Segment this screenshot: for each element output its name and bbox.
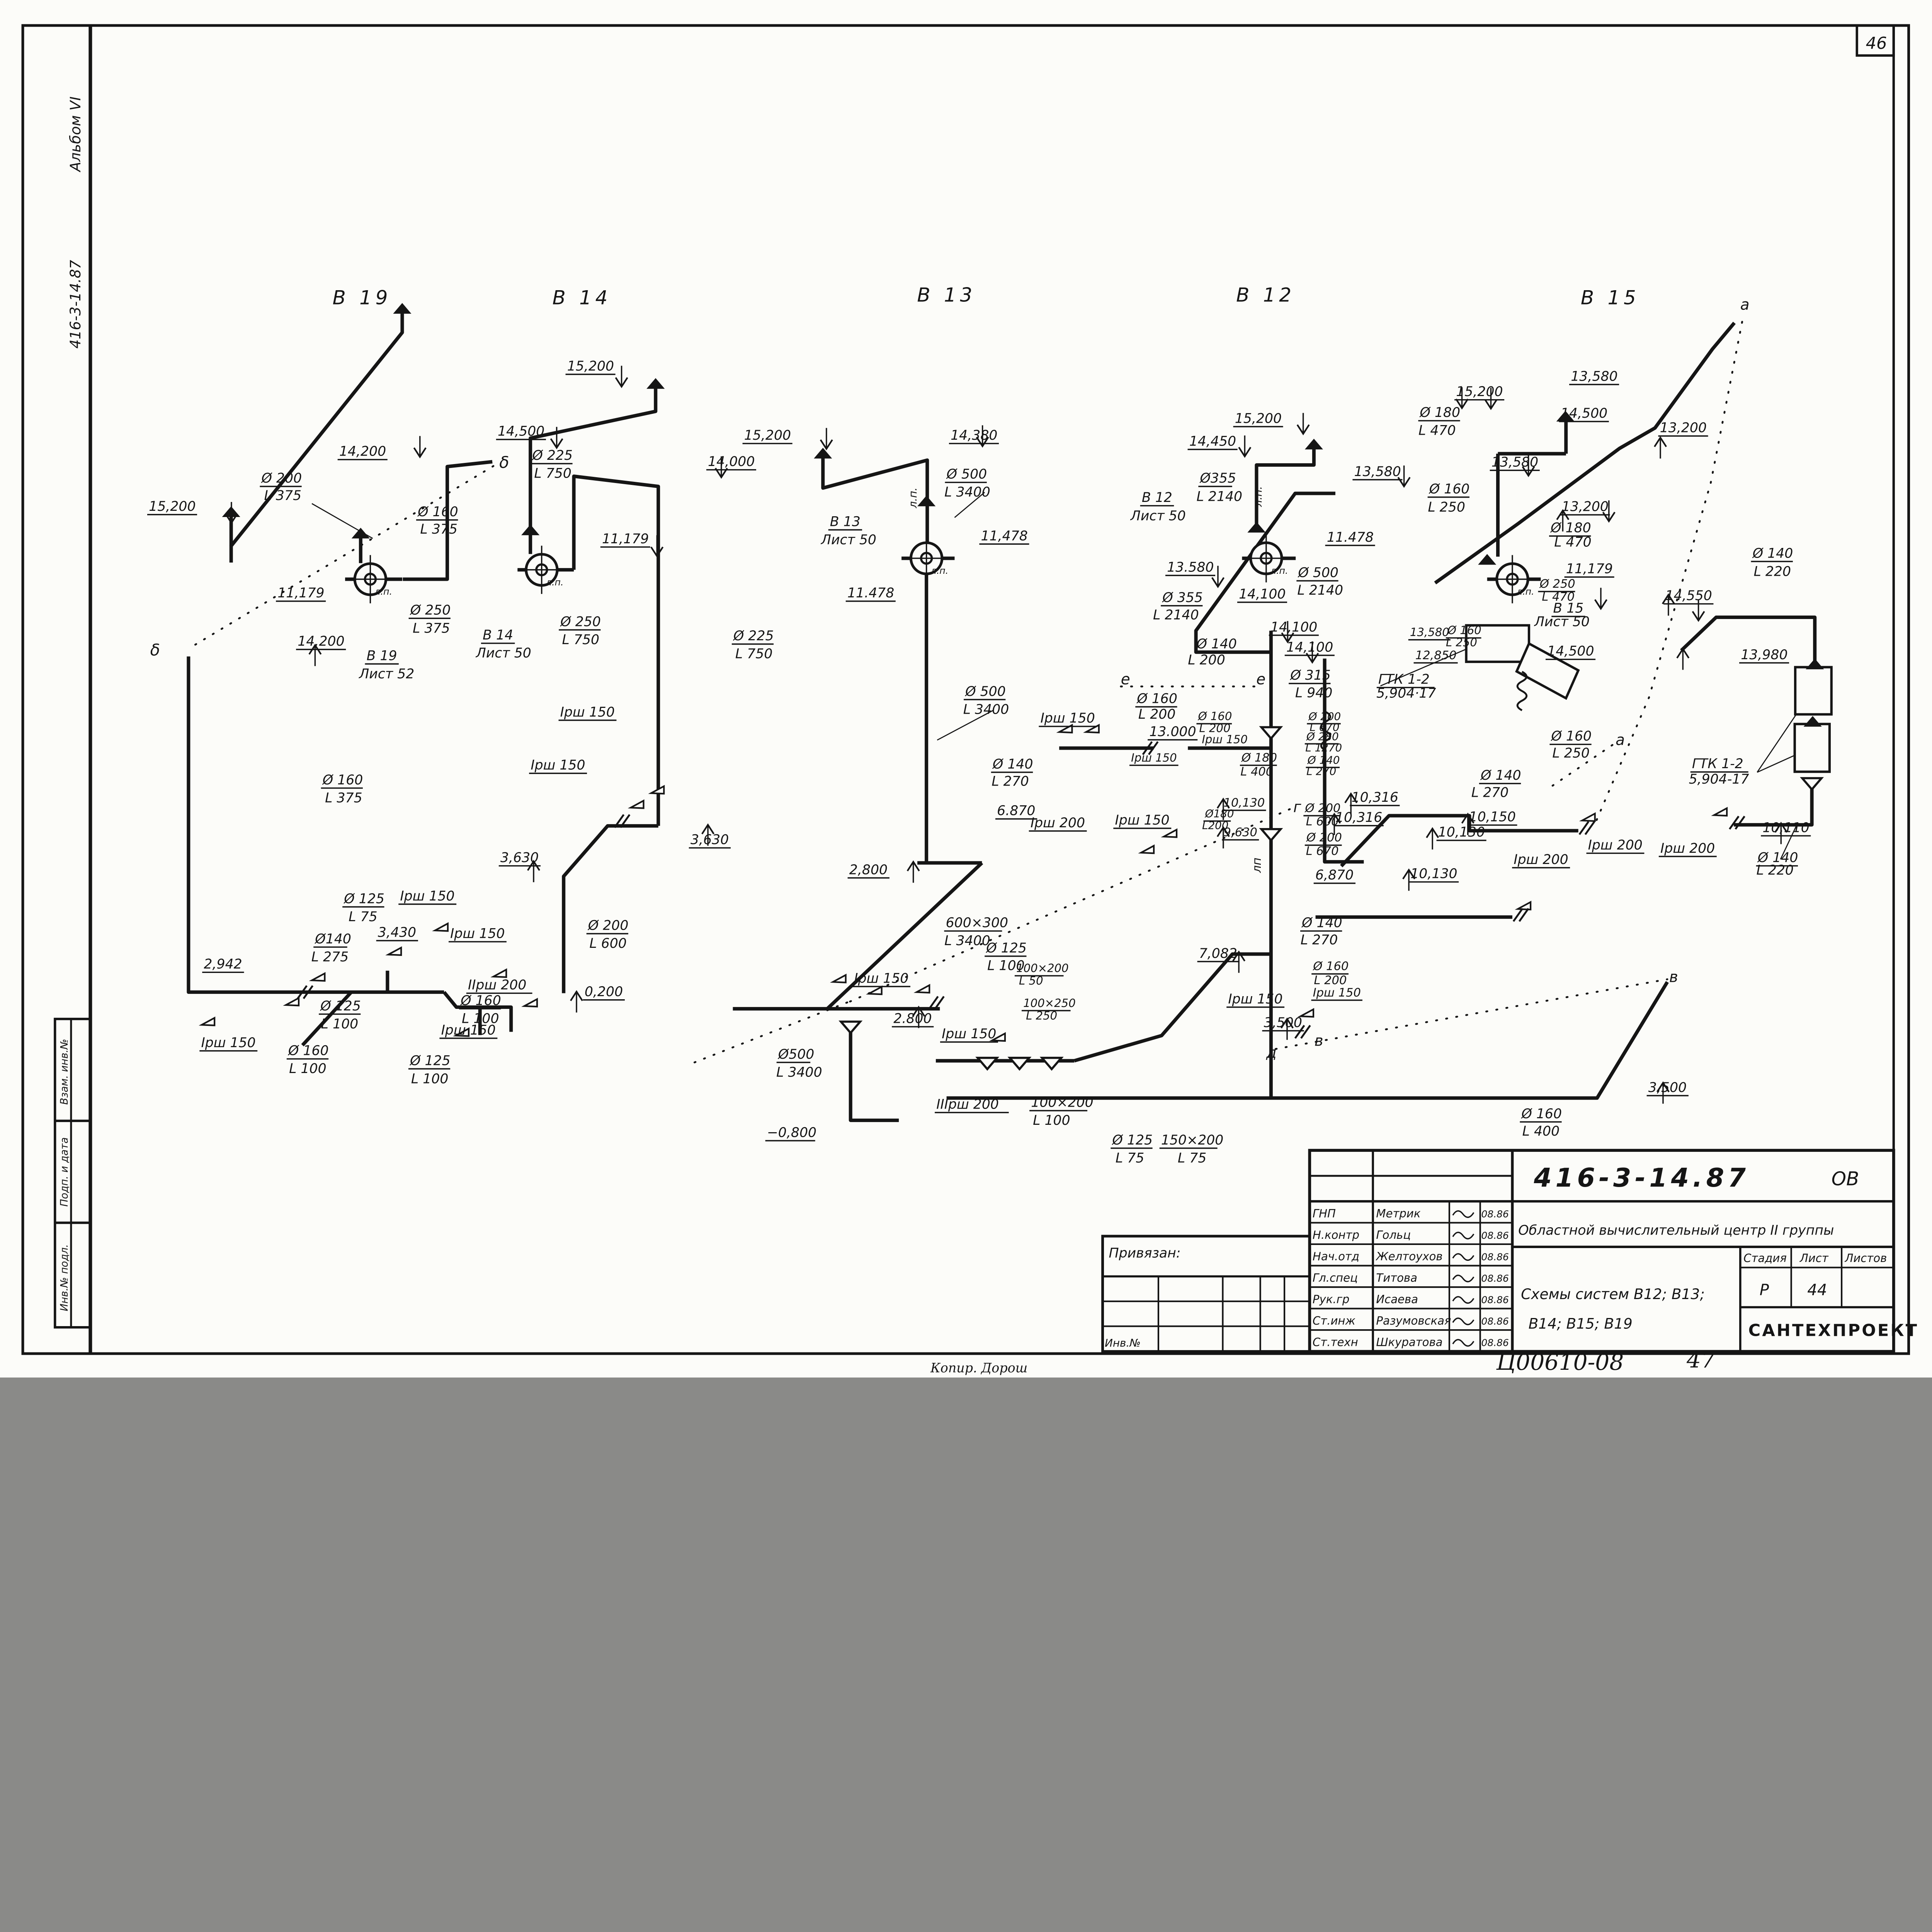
annotation-78: L 250 xyxy=(1026,1009,1057,1022)
annotation-34: Ø 160 xyxy=(460,993,501,1009)
annotation-165: а xyxy=(1616,731,1625,749)
annotation-122: Ø 180 xyxy=(1241,751,1277,765)
role-signature xyxy=(1453,1232,1474,1238)
annotation-88: Ø355 xyxy=(1199,471,1236,486)
annotation-162: L 270 xyxy=(1471,785,1509,800)
annotation-37: 15,200 xyxy=(567,359,614,374)
page-number: 46 xyxy=(1866,34,1887,53)
dotted-run xyxy=(1594,322,1742,826)
annotation-19: Ø 125 xyxy=(343,891,384,906)
titleblock-code: 416-3-14.87 xyxy=(1533,1163,1749,1193)
role-name-0: Метрик xyxy=(1376,1207,1420,1220)
annotation-4: δ xyxy=(499,453,509,472)
vent-triangle-icon xyxy=(521,524,539,535)
role-name-5: Разумовская xyxy=(1376,1314,1451,1327)
annotation-50: Iрш 150 xyxy=(531,758,585,773)
annotation-72: Iрш 150 xyxy=(854,971,908,986)
annotation-51: Ø 200 xyxy=(587,918,629,934)
annotation-102: 11.478 xyxy=(1327,530,1374,545)
side-strip-label-0: Взам. инв.№ xyxy=(59,1039,70,1105)
equipment-box xyxy=(1795,724,1830,772)
annotation-184: 12,850 xyxy=(1415,649,1457,662)
role-date-6: 08.86 xyxy=(1481,1337,1509,1349)
grille-flag-icon xyxy=(869,987,881,994)
annotation-180: Лист 50 xyxy=(1534,614,1590,629)
grille-flag-icon xyxy=(1141,846,1154,853)
role-signature xyxy=(1453,1318,1474,1324)
annotation-23: Ø140 xyxy=(314,931,351,947)
annotation-30: L 100 xyxy=(289,1061,327,1077)
annotation-21: Iрш 150 xyxy=(400,888,454,904)
annotation-18: 2,942 xyxy=(204,957,242,972)
annotation-1: 14,200 xyxy=(339,444,386,459)
sheet-value: 44 xyxy=(1807,1281,1827,1299)
role-title-3: Гл.спец xyxy=(1313,1271,1358,1284)
annotation-145: 6,870 xyxy=(1315,867,1354,883)
annotation-80: 100×200 xyxy=(1031,1095,1093,1111)
annotation-108: Ø 140 xyxy=(1196,636,1237,652)
grille-flag-icon xyxy=(524,999,537,1007)
equipment-box xyxy=(1795,667,1832,714)
annotation-186: 5,904·17 xyxy=(1376,686,1436,701)
annotation-138: L 670 xyxy=(1306,844,1339,858)
annotation-189: Ø 140 xyxy=(1752,546,1793,561)
annotation-79: Iрш 150 xyxy=(942,1026,996,1042)
flex-coil xyxy=(1517,672,1527,710)
annotation-193: 5,904-17 xyxy=(1689,772,1749,787)
annotation-67: 2.800 xyxy=(893,1011,932,1026)
side-code-label: 416-3-14.87 xyxy=(67,260,84,349)
annotation-12: 14,200 xyxy=(298,634,344,649)
annotation-140: 6.870 xyxy=(997,803,1035,819)
funnel-icon xyxy=(978,1058,997,1069)
fan-lp-label-2: л.п. xyxy=(930,565,948,576)
annotation-107: 14,100 xyxy=(1286,639,1333,655)
vent-triangle-icon xyxy=(814,448,832,459)
vent-triangle-icon xyxy=(1247,522,1265,532)
annotation-97: л.п. xyxy=(1252,486,1264,507)
annotation-158: 10,150 xyxy=(1469,810,1516,825)
annotation-179: В 15 xyxy=(1553,601,1583,616)
inv-label: Инв.№ xyxy=(1105,1337,1141,1349)
annotation-197: L 220 xyxy=(1756,863,1794,878)
annotation-41: Ø 250 xyxy=(560,614,601,629)
annotation-55: 14,380 xyxy=(951,428,997,443)
role-name-3: Титова xyxy=(1376,1271,1417,1284)
annotation-167: Iрш 200 xyxy=(1514,852,1568,867)
side-strip-label-1: Подп. и дата xyxy=(59,1137,70,1207)
annotation-113: L 940 xyxy=(1295,685,1333,701)
annotation-150: 3,500 xyxy=(1264,1015,1302,1031)
annotation-43: В 14 xyxy=(483,628,513,643)
annotation-68: Ø500 xyxy=(777,1047,815,1062)
annotation-56: Ø 500 xyxy=(946,467,987,482)
annotation-174: Ø 180 xyxy=(1550,520,1591,536)
funnel-icon xyxy=(1010,1058,1029,1069)
annotation-195: Iрш 200 xyxy=(1660,841,1715,856)
vent-triangle-icon xyxy=(352,528,370,539)
annotation-148: 7,082 xyxy=(1199,946,1237,961)
attached-label: Привязан: xyxy=(1109,1246,1181,1261)
annotation-82: Ø 125 xyxy=(1112,1133,1153,1148)
funnel-icon xyxy=(1042,1058,1061,1069)
grille-flag-icon xyxy=(312,973,325,981)
annotation-6: L 750 xyxy=(534,466,571,481)
system-title-B19: В 19 xyxy=(333,287,392,309)
annotation-137: Ø 200 xyxy=(1306,831,1342,845)
funnel-icon xyxy=(1261,727,1281,738)
annotation-201: Ø 160 xyxy=(1521,1106,1562,1122)
annotation-90: В 12 xyxy=(1142,490,1172,505)
annotation-200: в xyxy=(1669,968,1678,986)
annotation-155: Iрш 150 xyxy=(1313,986,1361,1000)
annotation-120: Iрш 150 xyxy=(1041,711,1095,726)
annotation-29: Ø 160 xyxy=(287,1043,329,1059)
system-title-B12: В 12 xyxy=(1236,284,1295,306)
annotation-146: Ø 140 xyxy=(1301,915,1342,931)
fan-lp-label-4: л.п. xyxy=(1516,586,1534,597)
titleblock-object: Областной вычислительный центр II группы xyxy=(1518,1223,1834,1238)
annotation-123: L 400 xyxy=(1240,765,1273,779)
annotation-152: в xyxy=(1315,1032,1323,1049)
annotation-143: L 270 xyxy=(992,774,1029,789)
annotation-149: Iрш 150 xyxy=(1228,992,1282,1007)
annotation-83: L 75 xyxy=(1116,1150,1145,1166)
annotation-44: Лист 50 xyxy=(475,646,531,661)
annotation-172: 13,580 xyxy=(1492,454,1538,470)
role-title-6: Ст.техн xyxy=(1313,1336,1358,1349)
pipe-run xyxy=(850,1026,899,1120)
annotation-190: L 220 xyxy=(1754,564,1791,580)
side-strip-label-2: Инв.№ подл. xyxy=(59,1244,70,1311)
annotation-9: 11,179 xyxy=(277,585,324,601)
annotation-166: Iрш 200 xyxy=(1588,837,1643,853)
role-name-6: Шкуратова xyxy=(1376,1336,1442,1349)
annotation-169: 13,580 xyxy=(1571,369,1617,384)
grille-flag-icon xyxy=(388,947,401,955)
role-signature xyxy=(1453,1275,1474,1281)
annotation-110: е xyxy=(1256,671,1265,688)
annotation-65: 600×300 xyxy=(946,915,1008,931)
annotation-139: лп xyxy=(1250,857,1264,873)
pipe-run xyxy=(564,826,658,993)
annotation-31: Ø 125 xyxy=(409,1053,451,1068)
annotation-5: Ø 225 xyxy=(532,448,573,463)
annotation-24: L 275 xyxy=(311,949,349,965)
annotation-198: а xyxy=(1740,296,1750,314)
annotation-111: е xyxy=(1121,671,1130,688)
annotation-161: Ø 140 xyxy=(1480,768,1521,783)
annotation-187: 14,500 xyxy=(1547,644,1594,659)
annotation-53: 0,200 xyxy=(585,984,623,1000)
vent-triangle-icon xyxy=(1804,716,1822,727)
annotation-117: Ø 160 xyxy=(1198,709,1232,723)
annotation-131: Ø180 xyxy=(1205,807,1234,820)
dotted-run xyxy=(694,1002,849,1063)
annotation-49: 3,630 xyxy=(500,850,539,866)
role-date-5: 08.86 xyxy=(1481,1316,1509,1327)
annotation-159: 10,130 xyxy=(1438,825,1485,840)
annotation-71: IIIрш 200 xyxy=(936,1097,999,1112)
annotation-62: Ø 500 xyxy=(964,684,1006,699)
grille-flag-icon xyxy=(202,1018,214,1025)
annotation-144: Iрш 150 xyxy=(1115,813,1169,828)
annotation-42: L 750 xyxy=(562,632,600,648)
fan-lp-label-0: л.п. xyxy=(374,586,392,597)
sheets-label: Листов xyxy=(1844,1252,1887,1265)
handwritten-page: 47 xyxy=(1686,1347,1715,1373)
vent-triangle-icon xyxy=(1478,554,1496,565)
annotation-54: 15,200 xyxy=(744,428,791,443)
annotation-93: Ø 180 xyxy=(1419,405,1461,420)
grille-flag-icon xyxy=(1164,830,1177,837)
pipe-run xyxy=(231,311,402,563)
annotation-86: 15,200 xyxy=(1235,411,1282,426)
annotation-16: Ø 160 xyxy=(322,772,363,788)
annotation-60: 11,478 xyxy=(981,528,1028,544)
grille-flag-icon xyxy=(493,969,506,977)
fan-lp-label-3: л.п. xyxy=(1270,565,1288,576)
system-title-B15: В 15 xyxy=(1581,287,1640,309)
vent-triangle-icon xyxy=(646,378,665,389)
role-title-0: ГНП xyxy=(1313,1207,1336,1220)
annotation-177: Ø 250 xyxy=(1539,577,1575,591)
annotation-36: Iрш 150 xyxy=(441,1022,496,1038)
annotation-87: 14,450 xyxy=(1189,434,1236,449)
sheet-label: Лист xyxy=(1799,1252,1829,1265)
role-signature xyxy=(1453,1254,1474,1260)
vent-triangle-icon xyxy=(917,495,935,506)
annotation-64: 2,800 xyxy=(849,862,888,878)
annotation-2: Ø 200 xyxy=(261,471,302,486)
handwritten-code: Ц00610-08 xyxy=(1496,1349,1624,1375)
annotation-58: В 13 xyxy=(830,514,861,530)
annotation-128: Ø 140 xyxy=(1307,753,1340,766)
grille-flag-icon xyxy=(1714,808,1727,816)
schematic-canvas: 46Альбом VI416-3-14.87Взам. инв.№Подп. и… xyxy=(0,0,1932,1378)
annotation-101: L 2140 xyxy=(1153,607,1199,623)
annotation-40: 11,179 xyxy=(602,531,649,547)
annotation-136: L 600 xyxy=(1306,815,1339,828)
role-date-1: 08.86 xyxy=(1481,1230,1509,1241)
annotation-52: L 600 xyxy=(589,936,627,951)
annotation-127: L 1270 xyxy=(1305,741,1342,754)
role-title-4: Рук.гр xyxy=(1313,1293,1349,1306)
annotation-163: Ø 160 xyxy=(1551,729,1592,744)
annotation-202: L 400 xyxy=(1522,1124,1560,1139)
titleblock-org: САНТЕХПРОЕКТ xyxy=(1748,1321,1919,1340)
annotation-134: г xyxy=(1293,798,1301,816)
annotation-185: ГТК 1-2 xyxy=(1378,672,1430,687)
annotation-39: 14,000 xyxy=(708,454,755,469)
annotation-181: Ø 160 xyxy=(1447,624,1481,637)
annotation-28: Iрш 150 xyxy=(201,1035,255,1051)
drawing-sheet: 46Альбом VI416-3-14.87Взам. инв.№Подп. и… xyxy=(0,0,1932,1378)
role-signature xyxy=(1453,1211,1474,1217)
annotation-8: L 375 xyxy=(420,522,457,537)
annotation-91: Лист 50 xyxy=(1130,508,1186,524)
annotation-133: 9,630 xyxy=(1224,826,1257,839)
annotation-11: L 375 xyxy=(413,621,450,636)
annotation-191: 13,980 xyxy=(1741,647,1787,663)
role-date-4: 08.86 xyxy=(1481,1294,1509,1306)
annotation-15: δ xyxy=(150,641,160,660)
role-date-2: 08.86 xyxy=(1481,1252,1509,1263)
titleblock-doc-title2: В14; В15; В19 xyxy=(1529,1315,1633,1332)
role-title-5: Ст.инж xyxy=(1313,1314,1355,1327)
stage-value: Р xyxy=(1760,1281,1769,1299)
annotation-156: 10,316 xyxy=(1352,790,1398,805)
annotation-114: Ø 160 xyxy=(1136,691,1177,707)
annotation-126: Ø 280 xyxy=(1306,730,1339,743)
annotation-70: −0,800 xyxy=(767,1125,816,1140)
annotation-57: L 3400 xyxy=(944,485,990,500)
annotation-17: L 375 xyxy=(325,790,362,806)
annotation-7: Ø 160 xyxy=(417,504,458,520)
copier-note: Копир. Дорош xyxy=(930,1361,1027,1376)
annotation-63: L 3400 xyxy=(963,702,1009,717)
annotation-188: 14,550 xyxy=(1665,588,1712,604)
annotation-99: 13.580 xyxy=(1167,560,1214,575)
vent-triangle-icon xyxy=(1806,658,1824,669)
system-title-B14: В 14 xyxy=(553,287,612,309)
annotation-182: L 250 xyxy=(1446,636,1477,649)
annotation-142: Ø 140 xyxy=(992,757,1033,772)
annotation-153: Ø 160 xyxy=(1312,960,1349,973)
annotation-104: L 2140 xyxy=(1297,583,1343,598)
annotation-154: L 200 xyxy=(1314,974,1347,987)
annotation-94: L 470 xyxy=(1418,423,1456,439)
annotation-0: 15,200 xyxy=(149,499,196,514)
grille-flag-icon xyxy=(1518,902,1531,909)
titleblock-code-suffix: ОВ xyxy=(1832,1168,1859,1190)
role-signature xyxy=(1453,1297,1474,1303)
annotation-194: 10,110 xyxy=(1762,820,1809,835)
funnel-icon xyxy=(841,1022,860,1033)
annotation-25: Iрш 150 xyxy=(450,926,505,941)
annotation-73: Ø 125 xyxy=(985,940,1027,956)
grille-flag-icon xyxy=(833,975,845,982)
annotation-173: 13,200 xyxy=(1562,499,1609,515)
role-name-4: Исаева xyxy=(1376,1293,1418,1306)
annotation-176: 11,179 xyxy=(1566,561,1613,577)
fan-lp-label-1: л.п. xyxy=(546,577,563,588)
annotation-75: 100×200 xyxy=(1016,962,1069,975)
annotation-3: L 375 xyxy=(264,488,302,503)
system-title-B13: В 13 xyxy=(917,284,976,306)
vent-triangle-icon xyxy=(1305,439,1323,449)
annotation-22: 3,430 xyxy=(378,925,416,940)
annotation-66: L 3400 xyxy=(944,933,990,949)
role-name-2: Желтоухов xyxy=(1375,1250,1442,1263)
annotation-96: L 250 xyxy=(1428,500,1465,515)
annotation-33: IIрш 200 xyxy=(468,978,526,993)
annotation-46: L 750 xyxy=(735,646,773,662)
titleblock-doc-title: Схемы систем В12; В13; xyxy=(1521,1286,1705,1303)
annotation-95: Ø 160 xyxy=(1429,481,1470,497)
role-date-0: 08.86 xyxy=(1481,1209,1509,1220)
annotation-168: 15,200 xyxy=(1456,384,1503,400)
grille-flag-icon xyxy=(286,998,299,1005)
role-title-2: Нач.отд xyxy=(1313,1250,1359,1263)
pipe-run xyxy=(1734,783,1812,825)
annotation-157: 10,316 xyxy=(1335,810,1382,825)
annotation-105: 14,100 xyxy=(1239,587,1286,602)
role-name-1: Гольц xyxy=(1376,1228,1411,1242)
annotation-85: L 75 xyxy=(1178,1150,1207,1166)
role-signature xyxy=(1453,1340,1474,1346)
annotation-112: Ø 315 xyxy=(1289,668,1331,683)
annotation-116: 13.000 xyxy=(1149,724,1196,740)
annotation-109: L 200 xyxy=(1188,653,1225,668)
annotation-13: В 19 xyxy=(367,648,397,664)
annotation-199: 3,500 xyxy=(1648,1080,1687,1095)
annotation-47: Iрш 150 xyxy=(560,704,615,720)
grille-flag-icon xyxy=(1301,1009,1313,1017)
annotation-183: 13,580 xyxy=(1410,626,1449,639)
annotation-61: 11.478 xyxy=(847,585,894,601)
grille-flag-icon xyxy=(1582,813,1595,821)
annotation-20: L 75 xyxy=(349,909,378,925)
vent-triangle-icon xyxy=(393,303,411,314)
annotation-129: L 270 xyxy=(1306,765,1336,778)
annotation-81: L 100 xyxy=(1033,1113,1070,1128)
annotation-76: L 50 xyxy=(1019,974,1043,987)
annotation-151: д xyxy=(1266,1044,1277,1062)
annotation-141: Iрш 200 xyxy=(1031,815,1085,831)
pipe-run xyxy=(1257,448,1314,527)
funnel-icon xyxy=(1802,778,1821,789)
annotation-26: Ø 125 xyxy=(320,998,361,1014)
annotation-170: 14,500 xyxy=(1561,406,1607,421)
stage-label: Стадия xyxy=(1743,1252,1787,1265)
annotation-147: L 270 xyxy=(1301,932,1338,948)
annotation-32: L 100 xyxy=(411,1071,449,1087)
annotation-38: 14,500 xyxy=(498,424,544,439)
annotation-100: Ø 355 xyxy=(1162,590,1203,605)
annotation-115: L 200 xyxy=(1138,707,1176,722)
annotation-10: Ø 250 xyxy=(410,603,451,618)
annotation-98: л.п. xyxy=(906,488,919,509)
annotation-84: 150×200 xyxy=(1161,1133,1223,1148)
annotation-103: Ø 500 xyxy=(1297,565,1338,580)
annotation-175: L 470 xyxy=(1554,534,1592,550)
annotation-192: ГТК 1-2 xyxy=(1692,756,1743,772)
annotation-14: Лист 52 xyxy=(358,667,414,682)
annotation-121: Iрш 150 xyxy=(1131,751,1177,764)
annotation-106: 14,100 xyxy=(1270,619,1317,635)
side-album-label: Альбом VI xyxy=(67,97,84,173)
annotation-119: Iрш 150 xyxy=(1202,733,1248,746)
grille-flag-icon xyxy=(435,923,448,931)
annotation-48: 3,630 xyxy=(690,832,729,848)
annotation-164: L 250 xyxy=(1552,745,1590,761)
annotation-27: L 100 xyxy=(321,1016,359,1032)
grille-flag-icon xyxy=(917,985,929,993)
role-title-1: Н.контр xyxy=(1313,1228,1359,1242)
annotation-69: L 3400 xyxy=(776,1065,822,1080)
annotation-77: 100×250 xyxy=(1023,997,1076,1010)
annotation-92: 13,580 xyxy=(1354,464,1401,480)
annotation-45: Ø 225 xyxy=(733,628,774,644)
funnel-icon xyxy=(1261,829,1281,840)
annotation-89: L 2140 xyxy=(1196,489,1242,504)
annotation-160: 10,130 xyxy=(1410,866,1457,882)
annotation-171: 13,200 xyxy=(1660,420,1707,436)
role-date-3: 08.86 xyxy=(1481,1273,1509,1284)
annotation-59: Лист 50 xyxy=(820,532,876,548)
grille-flag-icon xyxy=(631,801,643,808)
